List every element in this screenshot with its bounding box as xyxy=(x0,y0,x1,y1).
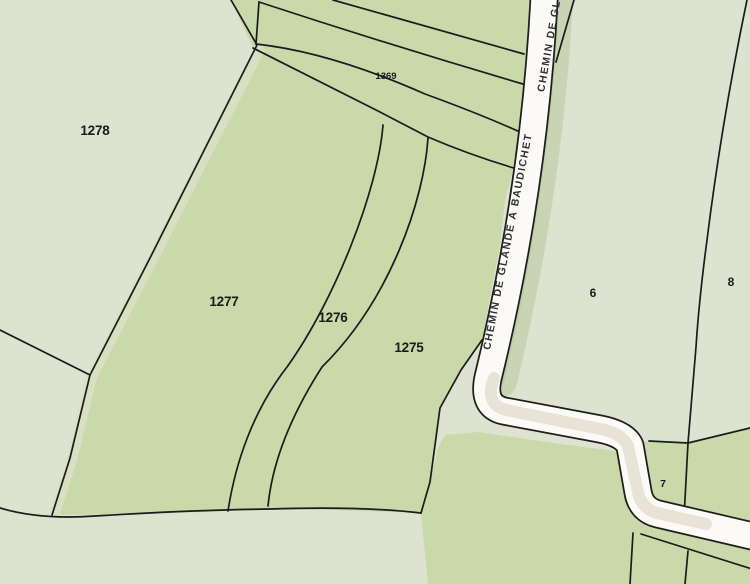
parcel-label-7: 7 xyxy=(660,478,666,490)
parcel-label-6: 6 xyxy=(590,286,597,300)
parcel-label-1369: 1369 xyxy=(375,71,396,82)
map-canvas[interactable]: CHEMIN DE GLANDE À BAUDICHET CHEMIN DE G… xyxy=(0,0,750,584)
parcel-label-1278: 1278 xyxy=(80,123,110,138)
parcel-label-1276: 1276 xyxy=(318,310,348,325)
parcel-label-1277: 1277 xyxy=(209,294,238,309)
parcel-label-8: 8 xyxy=(728,275,735,289)
parcel-label-1275: 1275 xyxy=(394,340,424,355)
cadastral-map[interactable]: CHEMIN DE GLANDE À BAUDICHET CHEMIN DE G… xyxy=(0,0,750,584)
